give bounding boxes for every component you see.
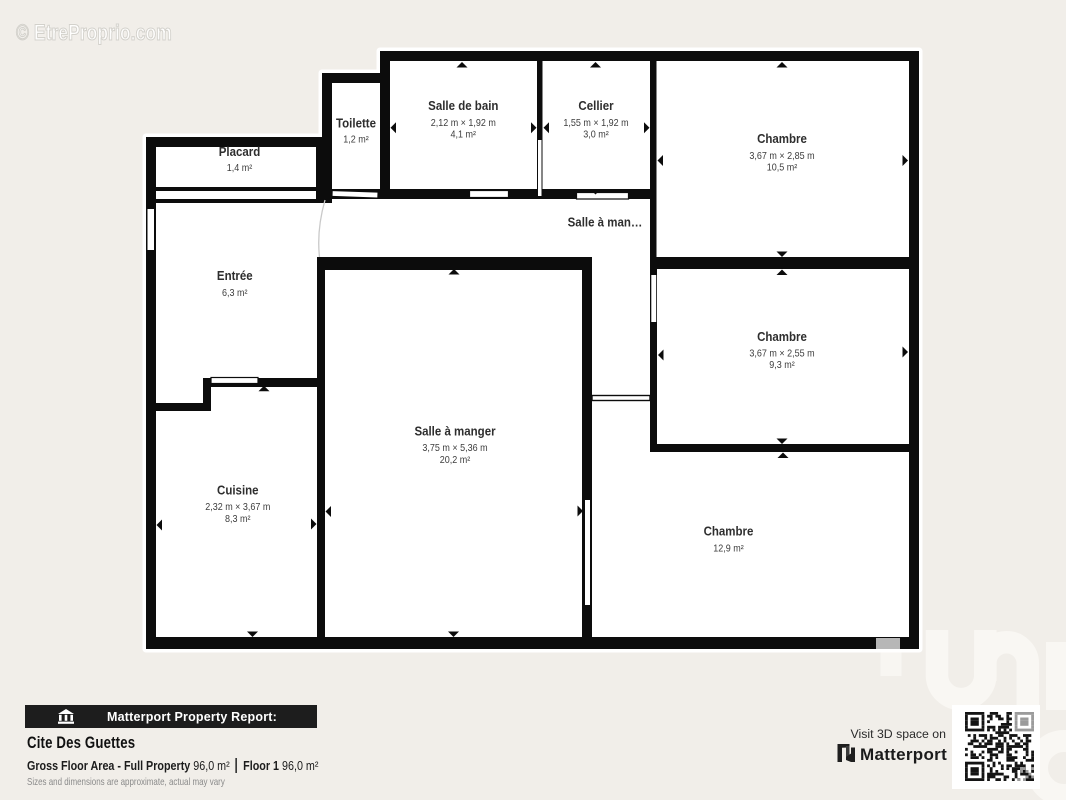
- svg-text:2,12 m × 1,92 m: 2,12 m × 1,92 m: [431, 117, 496, 129]
- svg-text:Salle de bain: Salle de bain: [428, 99, 498, 114]
- svg-text:10,5 m²: 10,5 m²: [767, 162, 797, 174]
- svg-text:20,2 m²: 20,2 m²: [440, 454, 470, 466]
- svg-text:3,67 m × 2,85 m: 3,67 m × 2,85 m: [749, 150, 814, 162]
- svg-text:1,4 m²: 1,4 m²: [227, 163, 252, 175]
- svg-text:6,3 m²: 6,3 m²: [222, 287, 247, 299]
- svg-text:Chambre: Chambre: [757, 329, 807, 344]
- svg-text:3,75 m × 5,36 m: 3,75 m × 5,36 m: [422, 443, 487, 455]
- svg-text:Salle à man…: Salle à man…: [568, 215, 643, 230]
- svg-text:Placard: Placard: [219, 145, 261, 160]
- svg-text:2,32 m × 3,67 m: 2,32 m × 3,67 m: [205, 502, 270, 514]
- svg-text:Chambre: Chambre: [757, 132, 807, 147]
- svg-text:12,9 m²: 12,9 m²: [713, 543, 743, 555]
- svg-text:3,67 m × 2,55 m: 3,67 m × 2,55 m: [749, 348, 814, 360]
- svg-text:4,1 m²: 4,1 m²: [451, 129, 476, 141]
- svg-text:8,3 m²: 8,3 m²: [225, 513, 250, 525]
- svg-text:Entrée: Entrée: [217, 269, 253, 284]
- svg-text:1,2 m²: 1,2 m²: [343, 134, 368, 146]
- svg-text:3,0 m²: 3,0 m²: [583, 129, 608, 141]
- svg-text:Cuisine: Cuisine: [217, 483, 259, 498]
- svg-text:1,55 m × 1,92 m: 1,55 m × 1,92 m: [563, 117, 628, 129]
- svg-text:Chambre: Chambre: [704, 524, 754, 539]
- svg-text:Toilette: Toilette: [336, 116, 376, 131]
- svg-text:Cellier: Cellier: [578, 99, 613, 114]
- svg-text:9,3 m²: 9,3 m²: [769, 360, 794, 372]
- svg-text:Salle à manger: Salle à manger: [414, 424, 495, 439]
